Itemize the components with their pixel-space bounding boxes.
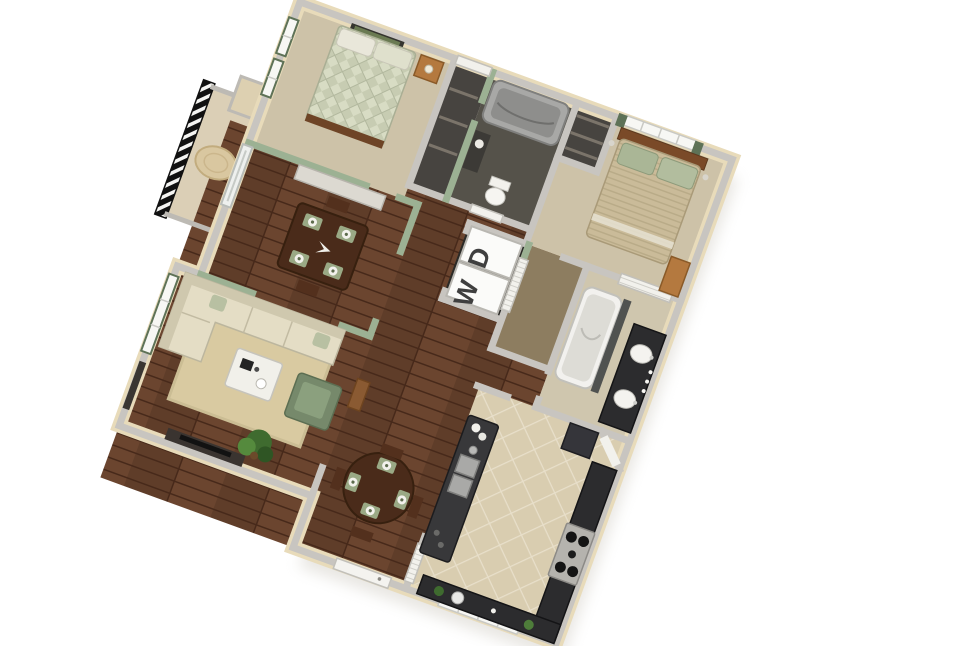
floor-plan: D W bbox=[58, 0, 745, 646]
floor-plan-render: D W bbox=[0, 0, 960, 646]
floor-plan-svg: D W bbox=[0, 0, 960, 646]
